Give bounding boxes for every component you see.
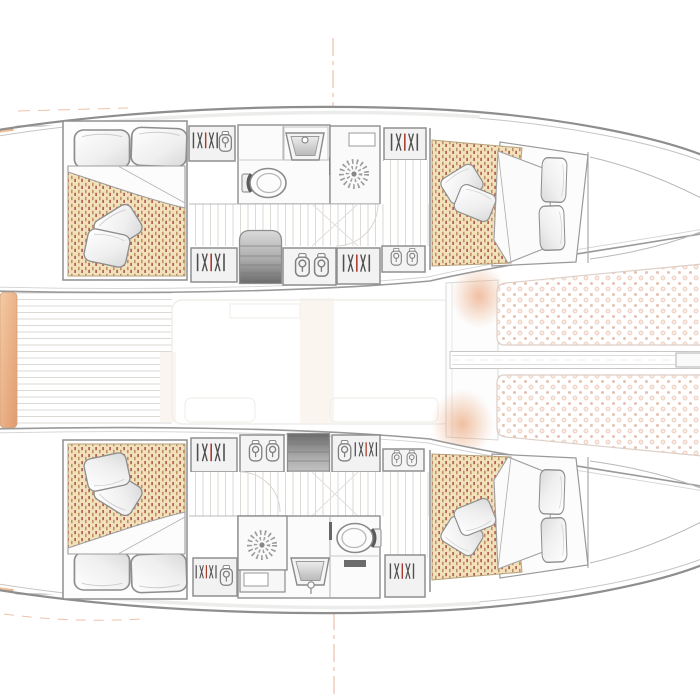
sink-drain xyxy=(302,137,308,143)
bottom-hull-head xyxy=(238,516,381,598)
beam-fitting xyxy=(676,353,700,367)
companionway-stairs xyxy=(240,231,282,284)
cockpit-bench-cushion xyxy=(0,292,17,428)
hanging-locker xyxy=(383,449,424,471)
saloon xyxy=(160,298,452,424)
shower-compartment xyxy=(330,126,380,204)
door-hinge xyxy=(329,522,332,540)
catamaran-floorplan xyxy=(0,0,700,700)
hatch xyxy=(344,560,366,567)
hanging-locker xyxy=(382,246,425,272)
bottom-hull xyxy=(0,428,700,613)
top-hull xyxy=(0,107,700,292)
bowsprit-beam xyxy=(450,352,700,369)
sink-drain xyxy=(308,582,314,588)
shower-compartment xyxy=(238,516,287,570)
